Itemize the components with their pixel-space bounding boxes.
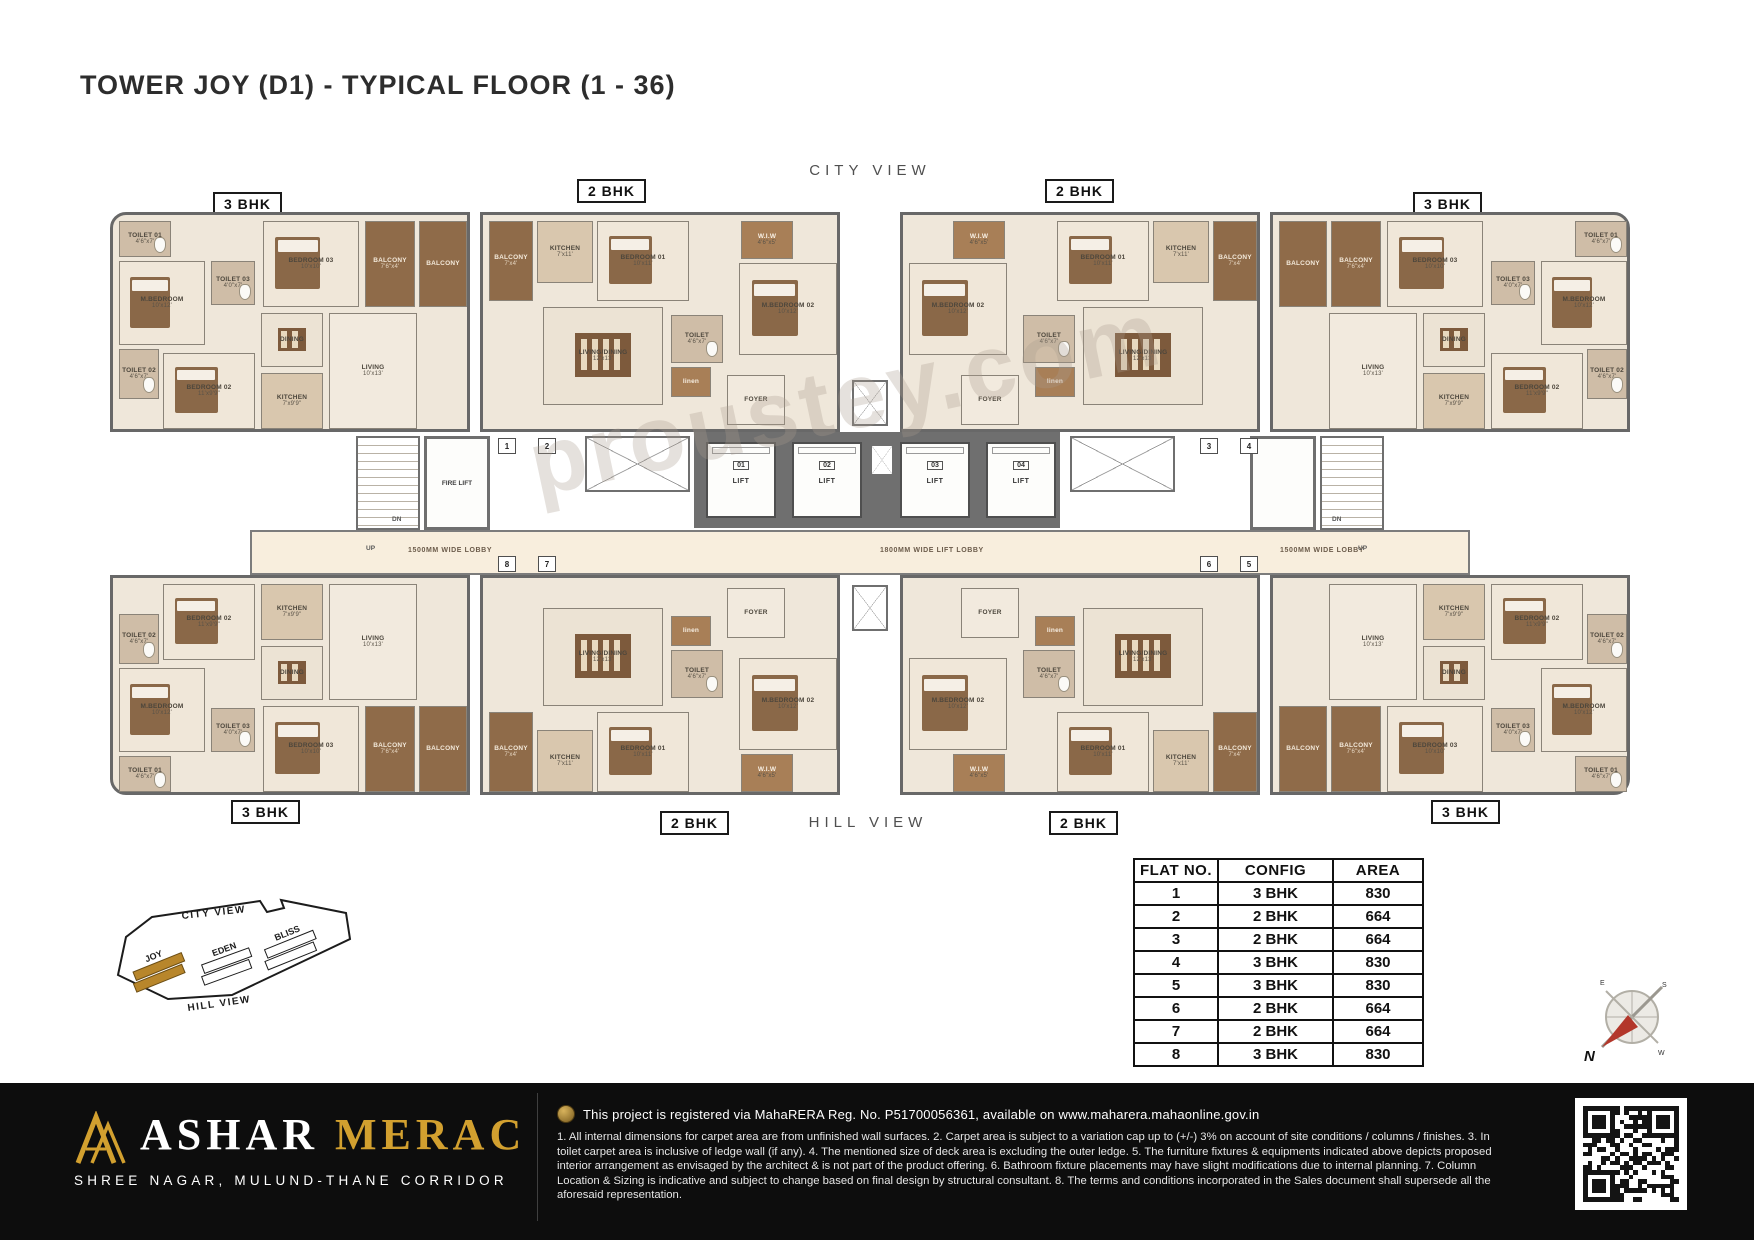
room-label: BEDROOM 0310'x10' (289, 257, 334, 272)
lift-label: LIFT (902, 478, 968, 485)
corridor-width-label-center: 1800MM WIDE LIFT LOBBY (880, 547, 984, 554)
room-dimension: 10'x11' (1081, 261, 1126, 269)
room-bedroom-03: BEDROOM 0310'x10' (1387, 221, 1483, 307)
stair-dn-label-right: DN (1332, 516, 1341, 523)
room-kitchen: KITCHEN7'x9'9" (1423, 584, 1485, 640)
stair-up-label-left: UP (366, 545, 375, 552)
room-dimension: 7'x9'9" (1439, 401, 1469, 409)
room-dimension: 7'6"x4' (1339, 264, 1373, 272)
room-dimension: 4'6"x7' (1037, 674, 1061, 682)
room-dimension: 4'6"x7' (1590, 639, 1624, 647)
room-label: FOYER (978, 609, 1001, 617)
flat-area-table: FLAT NO. CONFIG AREA 13 BHK83022 BHK6643… (1133, 858, 1424, 1067)
duct-top-center (852, 380, 888, 426)
room-dimension: 4'6"x7' (1037, 339, 1061, 347)
room-dimension: 7'x11' (1166, 252, 1196, 260)
room-balcony: BALCONY (1279, 706, 1327, 792)
room-label: BALCONY (426, 260, 460, 268)
room-toilet-03: TOILET 034'0"x7' (211, 261, 255, 305)
room-kitchen: KITCHEN7'x11' (537, 221, 593, 283)
room-living: LIVING10'x13' (1329, 584, 1417, 700)
footer-bar: ASHAR MERAC SHREE NAGAR, MULUND-THANE CO… (0, 1083, 1754, 1240)
room-label: BALCONY (1286, 745, 1320, 753)
room-toilet: TOILET4'6"x7' (1023, 650, 1075, 698)
room-living-dining: LIVING/DINING12'x13' (543, 307, 663, 405)
room-label: BEDROOM 0211'x9'9" (187, 615, 232, 630)
table-row: 53 BHK830 (1134, 974, 1423, 997)
table-row: 72 BHK664 (1134, 1020, 1423, 1043)
flat-wing-7: BALCONY7'x4'KITCHEN7'x11'BEDROOM 0110'x1… (900, 575, 1260, 795)
room-label: KITCHEN7'x11' (550, 245, 580, 260)
disclaimer-text: 1. All internal dimensions for carpet ar… (557, 1130, 1497, 1203)
room-living-dining: LIVING/DINING12'x13' (1083, 307, 1203, 405)
room-toilet: TOILET4'6"x7' (1023, 315, 1075, 363)
room-label: BEDROOM 0211'x9'9" (187, 384, 232, 399)
corridor-width-label-right: 1500MM WIDE LOBBY (1280, 547, 1364, 554)
service-duct-left (585, 436, 690, 492)
room-m-bedroom-02: M.BEDROOM 0210'x12' (909, 658, 1007, 750)
table-row: 62 BHK664 (1134, 997, 1423, 1020)
room-linen: linen (1035, 367, 1075, 397)
room-dimension: 4'6"x7' (122, 639, 156, 647)
room-label: TOILET4'6"x7' (1037, 332, 1061, 347)
room-toilet-02: TOILET 024'6"x7' (1587, 614, 1627, 664)
room-foyer: FOYER (961, 375, 1019, 425)
room-label: FOYER (744, 609, 767, 617)
room-kitchen: KITCHEN7'x9'9" (1423, 373, 1485, 429)
room-dimension: 11'x9'9" (187, 622, 232, 630)
room-label: DINING (1442, 336, 1466, 344)
room-dimension: 10'x12' (932, 704, 985, 712)
room-bedroom-01: BEDROOM 0110'x11' (1057, 712, 1149, 792)
room-dimension: 10'x12' (1563, 710, 1606, 718)
room-toilet-03: TOILET 034'0"x7' (1491, 261, 1535, 305)
room-label: LIVING10'x13' (1362, 364, 1385, 379)
room-label: LIVING10'x13' (362, 364, 385, 379)
room-w-i-w: W.I.W4'6"x5' (953, 221, 1005, 259)
room-label: DINING (280, 336, 304, 344)
room-label: LIVING/DINING12'x13' (1119, 349, 1168, 364)
room-dimension: 7'x9'9" (277, 401, 307, 409)
room-dimension: 10'x12' (141, 710, 184, 718)
room-label: KITCHEN7'x11' (1166, 245, 1196, 260)
flat-wing-3: BALCONY7'x4'KITCHEN7'x11'BEDROOM 0110'x1… (900, 212, 1260, 432)
room-dimension: 10'x10' (1413, 264, 1458, 272)
room-label: M.BEDROOM10'x12' (1563, 703, 1606, 718)
door-marker-8: 8 (498, 556, 516, 572)
table-cell: 664 (1333, 905, 1423, 928)
room-label: M.BEDROOM 0210'x12' (932, 697, 985, 712)
room-label: BEDROOM 0310'x10' (1413, 257, 1458, 272)
lift-number: 01 (733, 461, 749, 470)
room-w-i-w: W.I.W4'6"x5' (741, 754, 793, 792)
table-header-config: CONFIG (1218, 859, 1333, 882)
room-linen: linen (671, 616, 711, 646)
room-balcony: BALCONY (419, 221, 467, 307)
door-marker-5: 5 (1240, 556, 1258, 572)
room-label: KITCHEN7'x9'9" (1439, 605, 1469, 620)
room-dimension: 10'x10' (289, 264, 334, 272)
room-dimension: 7'6"x4' (1339, 749, 1373, 757)
room-dining: DINING (261, 646, 323, 700)
room-m-bedroom: M.BEDROOM10'x12' (1541, 668, 1627, 752)
room-label: BALCONY7'x4' (1218, 254, 1252, 269)
table-cell: 830 (1333, 974, 1423, 997)
duct-bottom-center (852, 585, 888, 631)
room-bedroom-02: BEDROOM 0211'x9'9" (1491, 353, 1583, 429)
room-label: BALCONY7'6"x4' (1339, 257, 1373, 272)
room-dimension: 4'6"x7' (122, 374, 156, 382)
room-label: BALCONY7'6"x4' (373, 742, 407, 757)
room-dimension: 10'x10' (289, 749, 334, 757)
ashar-merac-logo-icon (72, 1111, 130, 1169)
room-dimension: 7'x9'9" (1439, 612, 1469, 620)
room-bedroom-02: BEDROOM 0211'x9'9" (1491, 584, 1583, 660)
room-bedroom-02: BEDROOM 0211'x9'9" (163, 584, 255, 660)
stair-up-label-right: UP (1358, 545, 1367, 552)
room-m-bedroom-02: M.BEDROOM 0210'x12' (909, 263, 1007, 355)
compass-south-label: S (1662, 982, 1667, 989)
lift-label: LIFT (988, 478, 1054, 485)
room-dimension: 7'x4' (1218, 261, 1252, 269)
room-label: BEDROOM 0211'x9'9" (1515, 384, 1560, 399)
flat-table-body: 13 BHK83022 BHK66432 BHK66443 BHK83053 B… (1134, 882, 1423, 1066)
room-dimension: 4'6"x7' (1584, 774, 1618, 782)
room-dimension: 11'x9'9" (1515, 622, 1560, 630)
room-dimension: 7'x11' (550, 252, 580, 260)
door-marker-3: 3 (1200, 438, 1218, 454)
room-label: TOILET 014'6"x7' (1584, 767, 1618, 782)
room-dimension: 7'x4' (494, 261, 528, 269)
brand-name: ASHAR MERAC (140, 1109, 526, 1160)
footer-divider (537, 1093, 538, 1221)
flat-wing-2: BALCONY7'x4'KITCHEN7'x11'BEDROOM 0110'x1… (480, 212, 840, 432)
room-label: BALCONY7'x4' (1218, 745, 1252, 760)
room-label: BALCONY7'x4' (494, 745, 528, 760)
room-dimension: 12'x13' (579, 356, 628, 364)
room-label: LIVING/DINING12'x13' (1119, 650, 1168, 665)
room-dimension: 7'x9'9" (277, 612, 307, 620)
table-cell: 830 (1333, 1043, 1423, 1066)
bhk-label-bottom-1: 3 BHK (231, 800, 300, 824)
room-balcony: BALCONY (1279, 221, 1327, 307)
room-balcony: BALCONY7'6"x4' (1331, 706, 1381, 792)
room-label: BALCONY7'6"x4' (1339, 742, 1373, 757)
room-dimension: 10'x13' (1362, 371, 1385, 379)
table-cell: 830 (1333, 951, 1423, 974)
room-label: KITCHEN7'x9'9" (1439, 394, 1469, 409)
rera-registration-text: This project is registered via MahaRERA … (583, 1107, 1259, 1122)
bhk-label-bottom-4: 3 BHK (1431, 800, 1500, 824)
room-dimension: 10'x13' (1362, 642, 1385, 650)
room-label: BALCONY7'x4' (494, 254, 528, 269)
room-label: W.I.W4'6"x5' (758, 233, 777, 248)
table-row: 32 BHK664 (1134, 928, 1423, 951)
room-balcony: BALCONY (419, 706, 467, 792)
room-dimension: 4'0"x7' (216, 730, 250, 738)
room-dimension: 10'x12' (141, 303, 184, 311)
table-cell: 2 (1134, 905, 1218, 928)
room-label: M.BEDROOM 0210'x12' (762, 302, 815, 317)
room-dimension: 4'6"x7' (1584, 239, 1618, 247)
table-cell: 2 BHK (1218, 1020, 1333, 1043)
room-living-dining: LIVING/DINING12'x13' (1083, 608, 1203, 706)
table-header-row: FLAT NO. CONFIG AREA (1134, 859, 1423, 882)
flat-wing-8: TOILET 014'6"x7'M.BEDROOM10'x12'TOILET 0… (1270, 575, 1630, 795)
door-marker-4: 4 (1240, 438, 1258, 454)
room-label: KITCHEN7'x9'9" (277, 605, 307, 620)
brand-tagline: SHREE NAGAR, MULUND-THANE CORRIDOR (74, 1173, 508, 1188)
room-label: DINING (280, 669, 304, 677)
room-m-bedroom-02: M.BEDROOM 0210'x12' (739, 263, 837, 355)
room-dimension: 10'x11' (1081, 752, 1126, 760)
room-label: TOILET 014'6"x7' (128, 767, 162, 782)
room-bedroom-02: BEDROOM 0211'x9'9" (163, 353, 255, 429)
room-label: TOILET 034'0"x7' (216, 276, 250, 291)
corridor-width-label-left: 1500MM WIDE LOBBY (408, 547, 492, 554)
room-dimension: 4'6"x7' (685, 674, 709, 682)
compass-north-label: N (1584, 1048, 1596, 1065)
room-label: W.I.W4'6"x5' (758, 766, 777, 781)
room-label: BEDROOM 0110'x11' (621, 254, 666, 269)
maharera-seal-icon (557, 1105, 575, 1123)
table-cell: 2 BHK (1218, 928, 1333, 951)
room-label: FOYER (744, 396, 767, 404)
room-foyer: FOYER (727, 375, 785, 425)
lift-door (906, 447, 963, 454)
room-label: linen (1047, 627, 1063, 635)
room-label: BALCONY (1286, 260, 1320, 268)
room-dimension: 10'x11' (621, 261, 666, 269)
room-dimension: 10'x12' (1563, 303, 1606, 311)
room-dimension: 12'x13' (1119, 356, 1168, 364)
lift-label: LIFT (708, 478, 774, 485)
room-bedroom-03: BEDROOM 0310'x10' (263, 706, 359, 792)
table-cell: 2 BHK (1218, 905, 1333, 928)
room-dimension: 7'6"x4' (373, 749, 407, 757)
table-header-flat-no: FLAT NO. (1134, 859, 1218, 882)
staircase-left (356, 436, 420, 530)
lift-shaft-01: 01LIFT (706, 442, 776, 518)
compass-rose: N E S W (1578, 965, 1682, 1073)
room-dimension: 7'x4' (1218, 752, 1252, 760)
room-label: linen (1047, 378, 1063, 386)
room-bedroom-03: BEDROOM 0310'x10' (1387, 706, 1483, 792)
room-w-i-w: W.I.W4'6"x5' (741, 221, 793, 259)
floor-plan-page: TOWER JOY (D1) - TYPICAL FLOOR (1 - 36) … (0, 0, 1754, 1240)
room-kitchen: KITCHEN7'x11' (1153, 221, 1209, 283)
room-foyer: FOYER (727, 588, 785, 638)
lift-label: LIFT (794, 478, 860, 485)
room-dimension: 11'x9'9" (1515, 391, 1560, 399)
bhk-label-bottom-2: 2 BHK (660, 811, 729, 835)
room-label: TOILET 014'6"x7' (128, 232, 162, 247)
room-toilet-03: TOILET 034'0"x7' (1491, 708, 1535, 752)
table-row: 22 BHK664 (1134, 905, 1423, 928)
page-title: TOWER JOY (D1) - TYPICAL FLOOR (1 - 36) (80, 70, 676, 101)
room-dining: DINING (261, 313, 323, 367)
room-living-dining: LIVING/DINING12'x13' (543, 608, 663, 706)
location-key-map: CITY VIEW JOY EDEN BLISS HILL VIEW (110, 895, 360, 1025)
room-label: linen (683, 378, 699, 386)
room-label: TOILET4'6"x7' (685, 667, 709, 682)
staircase-right (1320, 436, 1384, 530)
room-dimension: 10'x12' (762, 704, 815, 712)
room-toilet-02: TOILET 024'6"x7' (119, 349, 159, 399)
room-m-bedroom: M.BEDROOM10'x12' (1541, 261, 1627, 345)
room-label: BEDROOM 0110'x11' (621, 745, 666, 760)
bhk-label-top-3: 2 BHK (1045, 179, 1114, 203)
table-cell: 4 (1134, 951, 1218, 974)
stair-dn-label-left: DN (392, 516, 401, 523)
room-dimension: 7'6"x4' (373, 264, 407, 272)
room-dimension: 4'0"x7' (216, 283, 250, 291)
room-dimension: 7'x11' (550, 761, 580, 769)
room-dimension: 4'6"x7' (685, 339, 709, 347)
room-label: BEDROOM 0110'x11' (1081, 745, 1126, 760)
room-kitchen: KITCHEN7'x11' (537, 730, 593, 792)
room-toilet: TOILET4'6"x7' (671, 315, 723, 363)
room-dimension: 4'6"x7' (1590, 374, 1624, 382)
table-header-area: AREA (1333, 859, 1423, 882)
rera-row: This project is registered via MahaRERA … (557, 1105, 1259, 1123)
lift-number: 04 (1013, 461, 1029, 470)
room-dimension: 4'6"x5' (758, 773, 777, 781)
room-label: TOILET 014'6"x7' (1584, 232, 1618, 247)
room-balcony: BALCONY7'6"x4' (365, 221, 415, 307)
room-dining: DINING (1423, 646, 1485, 700)
room-m-bedroom-02: M.BEDROOM 0210'x12' (739, 658, 837, 750)
table-row: 83 BHK830 (1134, 1043, 1423, 1066)
room-label: BEDROOM 0310'x10' (1413, 742, 1458, 757)
room-m-bedroom: M.BEDROOM10'x12' (119, 261, 205, 345)
room-toilet-03: TOILET 034'0"x7' (211, 708, 255, 752)
room-toilet-02: TOILET 024'6"x7' (119, 614, 159, 664)
room-foyer: FOYER (961, 588, 1019, 638)
room-dimension: 4'6"x7' (128, 239, 162, 247)
table-cell: 830 (1333, 882, 1423, 905)
room-balcony: BALCONY7'6"x4' (1331, 221, 1381, 307)
room-dimension: 7'x11' (1166, 761, 1196, 769)
table-cell: 3 BHK (1218, 974, 1333, 997)
flat-wing-5: TOILET 014'6"x7'M.BEDROOM10'x12'TOILET 0… (110, 575, 470, 795)
room-linen: linen (671, 367, 711, 397)
table-cell: 1 (1134, 882, 1218, 905)
room-balcony: BALCONY7'x4' (489, 712, 533, 792)
room-living: LIVING10'x13' (329, 313, 417, 429)
room-bedroom-01: BEDROOM 0110'x11' (597, 712, 689, 792)
room-label: LIVING10'x13' (1362, 635, 1385, 650)
room-toilet-01: TOILET 014'6"x7' (1575, 221, 1627, 257)
room-label: BEDROOM 0211'x9'9" (1515, 615, 1560, 630)
room-dimension: 4'6"x5' (758, 240, 777, 248)
room-label: LIVING/DINING12'x13' (579, 349, 628, 364)
room-label: W.I.W4'6"x5' (970, 766, 989, 781)
service-lift-shaft-right (1250, 436, 1316, 530)
lift-door (992, 447, 1049, 454)
lift-shaft-02: 02LIFT (792, 442, 862, 518)
lift-number: 02 (819, 461, 835, 470)
room-label: M.BEDROOM 0210'x12' (762, 697, 815, 712)
bhk-label-top-2: 2 BHK (577, 179, 646, 203)
room-label: TOILET 024'6"x7' (122, 367, 156, 382)
room-w-i-w: W.I.W4'6"x5' (953, 754, 1005, 792)
room-label: TOILET 024'6"x7' (1590, 367, 1624, 382)
room-balcony: BALCONY7'x4' (489, 221, 533, 301)
room-label: W.I.W4'6"x5' (970, 233, 989, 248)
room-dimension: 10'x12' (932, 309, 985, 317)
qr-code-grid (1583, 1106, 1679, 1202)
room-label: TOILET 034'0"x7' (1496, 723, 1530, 738)
table-row: 43 BHK830 (1134, 951, 1423, 974)
room-toilet-01: TOILET 014'6"x7' (119, 756, 171, 792)
table-cell: 7 (1134, 1020, 1218, 1043)
room-label: FOYER (978, 396, 1001, 404)
table-cell: 664 (1333, 1020, 1423, 1043)
room-dimension: 4'6"x5' (970, 240, 989, 248)
room-dimension: 4'0"x7' (1496, 283, 1530, 291)
compass-east-label: E (1600, 980, 1605, 987)
qr-code (1575, 1098, 1687, 1210)
room-dimension: 10'x13' (362, 642, 385, 650)
room-bedroom-01: BEDROOM 0110'x11' (1057, 221, 1149, 301)
table-cell: 2 BHK (1218, 997, 1333, 1020)
room-balcony: BALCONY7'x4' (1213, 221, 1257, 301)
fire-lift-shaft: FIRE LIFT (424, 436, 490, 530)
room-bedroom-03: BEDROOM 0310'x10' (263, 221, 359, 307)
lift-door (712, 447, 769, 454)
room-label: TOILET 024'6"x7' (1590, 632, 1624, 647)
table-cell: 3 (1134, 928, 1218, 951)
table-row: 13 BHK830 (1134, 882, 1423, 905)
table-cell: 3 BHK (1218, 882, 1333, 905)
table-cell: 6 (1134, 997, 1218, 1020)
hill-view-label: HILL VIEW (758, 814, 978, 831)
room-dimension: 10'x10' (1413, 749, 1458, 757)
room-kitchen: KITCHEN7'x9'9" (261, 584, 323, 640)
fire-lift-label: FIRE LIFT (442, 480, 472, 487)
room-toilet-01: TOILET 014'6"x7' (119, 221, 171, 257)
room-toilet: TOILET4'6"x7' (671, 650, 723, 698)
table-cell: 5 (1134, 974, 1218, 997)
city-view-label: CITY VIEW (760, 162, 980, 179)
door-marker-7: 7 (538, 556, 556, 572)
room-living: LIVING10'x13' (1329, 313, 1417, 429)
brand-name-secondary: MERAC (335, 1110, 526, 1159)
room-dimension: 4'0"x7' (1496, 730, 1530, 738)
bhk-label-bottom-3: 2 BHK (1049, 811, 1118, 835)
table-cell: 664 (1333, 997, 1423, 1020)
room-label: LIVING/DINING12'x13' (579, 650, 628, 665)
room-dimension: 12'x13' (1119, 657, 1168, 665)
room-label: M.BEDROOM10'x12' (141, 296, 184, 311)
room-toilet-01: TOILET 014'6"x7' (1575, 756, 1627, 792)
table-cell: 3 BHK (1218, 1043, 1333, 1066)
door-marker-2: 2 (538, 438, 556, 454)
room-label: KITCHEN7'x11' (550, 754, 580, 769)
room-label: TOILET 034'0"x7' (216, 723, 250, 738)
room-label: BEDROOM 0310'x10' (289, 742, 334, 757)
room-balcony: BALCONY7'6"x4' (365, 706, 415, 792)
room-living: LIVING10'x13' (329, 584, 417, 700)
room-label: TOILET4'6"x7' (685, 332, 709, 347)
room-linen: linen (1035, 616, 1075, 646)
flat-wing-4: TOILET 014'6"x7'M.BEDROOM10'x12'TOILET 0… (1270, 212, 1630, 432)
room-label: BEDROOM 0110'x11' (1081, 254, 1126, 269)
room-m-bedroom: M.BEDROOM10'x12' (119, 668, 205, 752)
room-dimension: 10'x12' (762, 309, 815, 317)
room-dining: DINING (1423, 313, 1485, 367)
